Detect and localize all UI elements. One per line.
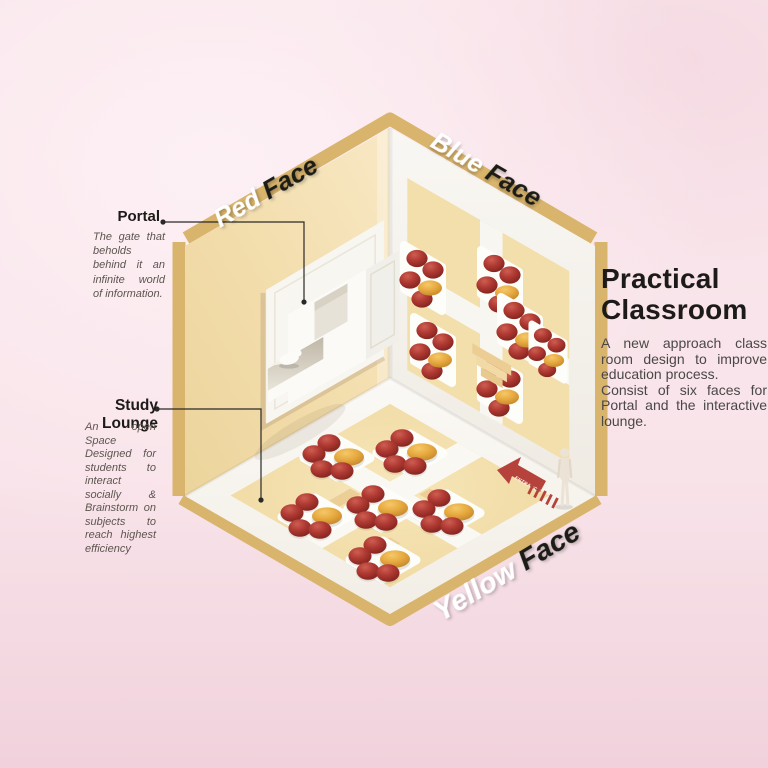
- portal-annotation-label: Portal: [60, 208, 160, 225]
- title-block: Practical Classroom A new approach class…: [601, 263, 767, 429]
- title-line-1: Practical: [601, 263, 767, 294]
- poster-canvas: ENTRANCE RedFace BlueFace YellowFace Pra…: [0, 0, 768, 768]
- page-title: Practical Classroom: [601, 263, 767, 325]
- study-lounge-annotation-description: An open Space Designed for students to i…: [85, 421, 156, 556]
- portal-annotation-description: The gate that beholds behind it an infin…: [93, 230, 165, 301]
- description-paragraph-1: A new approach class room design to impr…: [601, 336, 767, 383]
- description-paragraph-2: Consist of six faces for Portal and the …: [601, 383, 767, 430]
- title-line-2: Classroom: [601, 294, 767, 325]
